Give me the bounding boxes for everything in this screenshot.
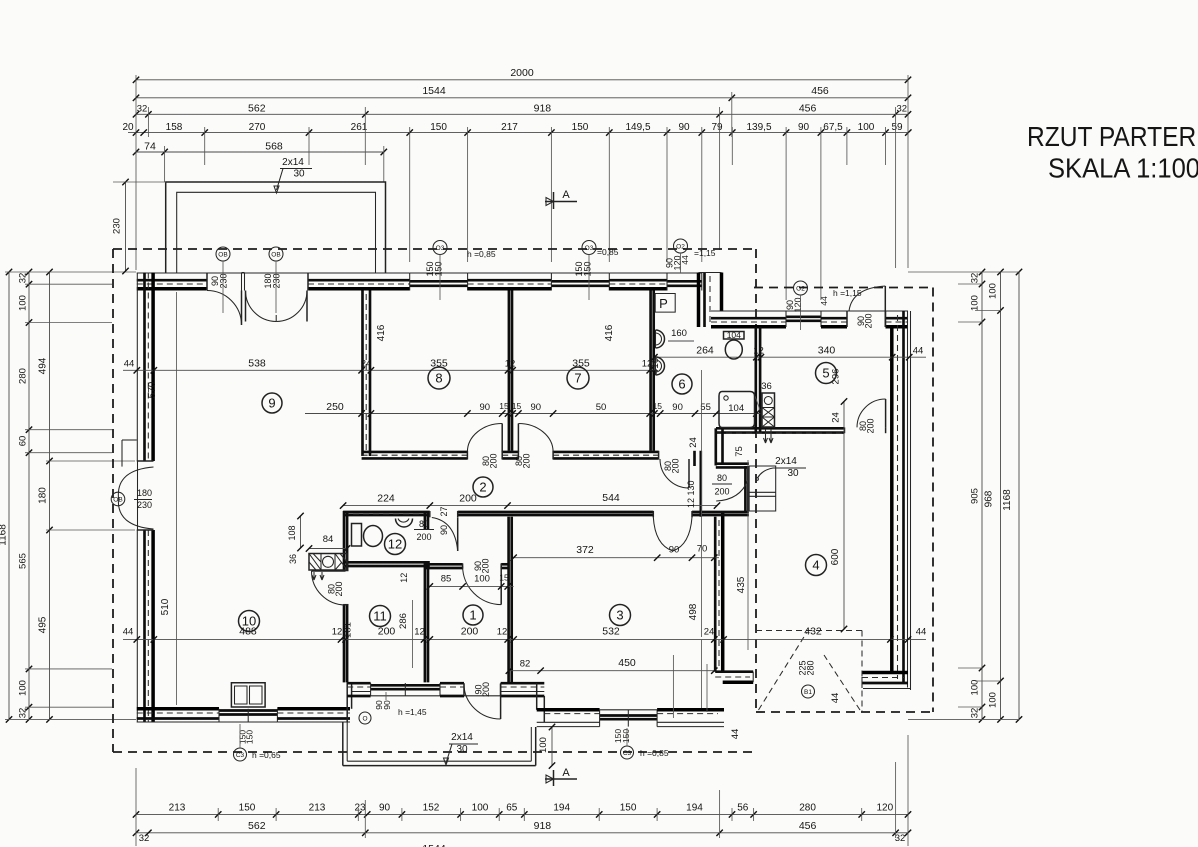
svg-text:h =0,65: h =0,65 [252, 750, 281, 760]
svg-text:80: 80 [717, 473, 727, 483]
svg-text:340: 340 [818, 345, 836, 357]
svg-text:12: 12 [414, 627, 425, 638]
svg-text:200: 200 [378, 626, 396, 638]
svg-text:20: 20 [122, 122, 134, 133]
svg-text:O3: O3 [585, 245, 594, 252]
svg-text:104: 104 [728, 403, 744, 414]
svg-text:15: 15 [512, 401, 522, 411]
svg-text:=0,85: =0,85 [597, 247, 619, 257]
svg-text:108: 108 [287, 525, 297, 540]
svg-text:80: 80 [419, 519, 429, 529]
svg-text:180: 180 [38, 487, 49, 504]
svg-text:90: 90 [480, 402, 491, 413]
svg-text:A: A [562, 189, 570, 201]
svg-text:100: 100 [472, 803, 489, 814]
svg-text:230: 230 [219, 273, 229, 288]
svg-text:432: 432 [804, 626, 822, 638]
svg-text:65: 65 [506, 803, 518, 814]
svg-text:5: 5 [822, 366, 829, 381]
svg-text:120: 120 [876, 803, 893, 814]
svg-text:498: 498 [688, 603, 699, 620]
svg-text:494: 494 [38, 357, 49, 374]
svg-text:230: 230 [137, 500, 152, 510]
svg-text:100: 100 [858, 122, 875, 133]
svg-text:RZUT PARTERU: RZUT PARTERU [1027, 121, 1198, 152]
svg-text:12: 12 [753, 346, 764, 357]
svg-text:100: 100 [18, 295, 29, 311]
svg-text:538: 538 [248, 358, 266, 370]
svg-text:P: P [659, 296, 668, 311]
svg-text:200: 200 [489, 453, 499, 468]
svg-text:O2: O2 [676, 244, 685, 251]
svg-text:565: 565 [18, 553, 29, 569]
svg-text:213: 213 [169, 803, 186, 814]
svg-text:562: 562 [248, 820, 266, 832]
svg-text:O2: O2 [796, 286, 805, 293]
svg-text:11: 11 [373, 609, 387, 624]
svg-text:150: 150 [239, 803, 256, 814]
svg-text:C3: C3 [236, 752, 245, 759]
svg-text:A: A [562, 767, 570, 779]
svg-text:1168: 1168 [1002, 489, 1013, 511]
svg-text:568: 568 [265, 140, 283, 152]
svg-text:1: 1 [469, 608, 476, 623]
svg-text:36: 36 [288, 554, 298, 564]
svg-text:160: 160 [671, 328, 687, 339]
svg-text:44: 44 [913, 346, 924, 357]
svg-text:230: 230 [272, 273, 282, 288]
svg-text:280: 280 [18, 368, 29, 384]
svg-text:50: 50 [596, 402, 607, 413]
svg-text:59: 59 [891, 122, 903, 133]
svg-text:8: 8 [435, 371, 442, 386]
svg-text:74: 74 [144, 140, 156, 152]
svg-text:100: 100 [18, 680, 29, 696]
svg-text:200: 200 [866, 418, 876, 433]
svg-text:90: 90 [672, 402, 683, 413]
svg-text:150: 150 [430, 122, 447, 133]
svg-text:24: 24 [831, 412, 842, 423]
svg-text:44: 44 [123, 627, 134, 638]
svg-text:90: 90 [678, 122, 690, 133]
svg-text:67,5: 67,5 [823, 122, 843, 133]
svg-text:1544: 1544 [422, 85, 446, 97]
svg-text:44: 44 [124, 359, 135, 370]
svg-text:544: 544 [602, 492, 620, 504]
svg-text:10: 10 [242, 614, 256, 629]
svg-text:416: 416 [376, 324, 387, 341]
svg-text:200: 200 [461, 626, 479, 638]
svg-text:h =1,45: h =1,45 [398, 707, 427, 717]
svg-text:532: 532 [602, 626, 620, 638]
svg-text:152: 152 [423, 803, 440, 814]
svg-text:OB: OB [113, 497, 122, 504]
svg-text:158: 158 [166, 122, 183, 133]
svg-text:250: 250 [326, 401, 344, 413]
svg-text:286: 286 [398, 613, 409, 629]
svg-text:15: 15 [653, 401, 663, 411]
svg-text:200: 200 [416, 532, 431, 542]
svg-text:100: 100 [988, 283, 999, 299]
svg-text:217: 217 [501, 122, 518, 133]
svg-text:200: 200 [481, 558, 491, 573]
svg-text:2x14: 2x14 [775, 456, 797, 467]
svg-text:200: 200 [714, 487, 729, 497]
svg-text:12: 12 [332, 627, 343, 638]
svg-text:264: 264 [696, 345, 714, 357]
svg-text:100: 100 [474, 574, 490, 585]
svg-text:200: 200 [334, 581, 344, 596]
svg-text:OB: OB [218, 252, 227, 259]
svg-text:O: O [362, 716, 367, 723]
svg-text:150: 150 [434, 261, 444, 276]
svg-text:200: 200 [481, 682, 491, 697]
svg-text:456: 456 [811, 85, 829, 97]
svg-text:32: 32 [970, 273, 981, 284]
svg-text:h =1,15: h =1,15 [833, 288, 862, 298]
svg-text:130: 130 [686, 480, 696, 495]
svg-text:2x14: 2x14 [451, 732, 473, 743]
svg-text:60: 60 [18, 436, 29, 447]
svg-text:200: 200 [864, 313, 874, 328]
svg-text:450: 450 [618, 657, 636, 669]
svg-text:194: 194 [553, 803, 570, 814]
svg-text:32: 32 [18, 273, 29, 284]
svg-text:15: 15 [499, 401, 509, 411]
svg-text:=1,15: =1,15 [694, 248, 716, 258]
svg-text:27: 27 [439, 506, 449, 516]
svg-text:h =0,85: h =0,85 [467, 249, 496, 259]
svg-text:44: 44 [916, 627, 927, 638]
svg-text:44: 44 [819, 296, 829, 306]
svg-text:194: 194 [686, 803, 703, 814]
svg-text:562: 562 [248, 103, 266, 115]
svg-text:435: 435 [736, 576, 747, 593]
svg-text:9: 9 [268, 396, 275, 411]
svg-text:85: 85 [441, 574, 452, 585]
svg-text:230: 230 [112, 218, 123, 234]
svg-text:90: 90 [379, 803, 391, 814]
svg-text:149,5: 149,5 [625, 122, 650, 133]
svg-text:510: 510 [160, 598, 171, 615]
svg-text:2000: 2000 [510, 67, 534, 79]
svg-text:100: 100 [538, 737, 549, 753]
svg-text:570: 570 [147, 381, 158, 398]
svg-text:23: 23 [354, 803, 366, 814]
svg-text:7: 7 [574, 371, 581, 386]
svg-text:372: 372 [576, 544, 594, 556]
svg-text:70: 70 [697, 544, 708, 555]
svg-text:24: 24 [361, 359, 372, 370]
svg-text:32: 32 [18, 708, 29, 719]
svg-text:180: 180 [137, 488, 152, 498]
svg-text:224: 224 [377, 493, 395, 505]
svg-text:905: 905 [970, 488, 981, 504]
svg-text:O3: O3 [436, 245, 445, 252]
svg-text:12: 12 [497, 627, 508, 638]
svg-text:90: 90 [531, 402, 542, 413]
svg-text:200: 200 [459, 493, 477, 505]
svg-text:32: 32 [139, 833, 150, 844]
svg-text:150: 150 [572, 122, 589, 133]
svg-text:1544: 1544 [422, 843, 446, 847]
svg-text:139,5: 139,5 [746, 122, 771, 133]
svg-text:456: 456 [799, 103, 817, 115]
svg-text:181: 181 [343, 622, 354, 638]
svg-text:12: 12 [505, 359, 516, 370]
svg-text:280: 280 [799, 803, 816, 814]
svg-text:30: 30 [787, 468, 799, 479]
svg-text:44: 44 [730, 729, 741, 740]
svg-text:150: 150 [620, 803, 637, 814]
svg-text:75: 75 [734, 446, 745, 457]
svg-text:6: 6 [678, 377, 685, 392]
svg-text:44: 44 [830, 693, 841, 704]
svg-text:h =0,85: h =0,85 [640, 748, 669, 758]
svg-text:32: 32 [137, 104, 148, 115]
svg-text:24: 24 [688, 437, 699, 448]
svg-text:12: 12 [388, 537, 402, 552]
svg-text:90: 90 [798, 122, 810, 133]
svg-text:79: 79 [711, 122, 723, 133]
svg-text:270: 270 [249, 122, 266, 133]
svg-text:OB: OB [271, 252, 280, 259]
svg-text:30: 30 [456, 744, 468, 755]
svg-text:918: 918 [534, 820, 552, 832]
svg-text:416: 416 [604, 324, 615, 341]
svg-text:968: 968 [984, 490, 995, 507]
svg-text:32: 32 [897, 104, 908, 115]
svg-text:104: 104 [727, 330, 741, 340]
svg-text:90: 90 [382, 700, 392, 710]
svg-text:120: 120 [793, 297, 803, 312]
svg-text:12: 12 [686, 498, 696, 508]
svg-text:495: 495 [38, 616, 49, 633]
svg-text:C3: C3 [623, 750, 632, 757]
svg-text:150: 150 [245, 730, 255, 744]
svg-text:84: 84 [323, 534, 334, 545]
svg-text:100: 100 [970, 295, 981, 311]
svg-text:44: 44 [680, 255, 690, 265]
svg-text:100: 100 [970, 680, 981, 696]
svg-text:918: 918 [534, 103, 552, 115]
svg-text:15: 15 [499, 573, 509, 583]
svg-text:82: 82 [520, 659, 531, 670]
svg-text:30: 30 [293, 169, 305, 180]
svg-text:280: 280 [806, 660, 816, 675]
svg-text:24: 24 [704, 627, 715, 638]
svg-text:2x14: 2x14 [282, 157, 304, 168]
svg-text:100: 100 [988, 692, 999, 708]
svg-text:90: 90 [439, 525, 449, 535]
svg-text:1168: 1168 [0, 524, 9, 546]
svg-text:32: 32 [895, 833, 906, 844]
svg-text:12: 12 [399, 573, 409, 583]
svg-text:200: 200 [522, 453, 532, 468]
svg-text:150: 150 [583, 261, 593, 276]
svg-text:600: 600 [830, 548, 841, 565]
svg-text:2: 2 [479, 480, 486, 495]
svg-text:SKALA 1:100: SKALA 1:100 [1048, 153, 1198, 184]
svg-text:4: 4 [812, 558, 819, 573]
svg-text:56: 56 [737, 803, 749, 814]
svg-text:3: 3 [616, 608, 623, 623]
svg-text:36: 36 [761, 381, 772, 392]
svg-text:200: 200 [671, 458, 681, 473]
svg-text:150: 150 [621, 729, 631, 743]
svg-text:213: 213 [309, 803, 326, 814]
svg-text:90: 90 [669, 545, 680, 556]
svg-text:456: 456 [799, 820, 817, 832]
svg-text:32: 32 [970, 708, 981, 719]
svg-text:B1: B1 [804, 689, 812, 696]
